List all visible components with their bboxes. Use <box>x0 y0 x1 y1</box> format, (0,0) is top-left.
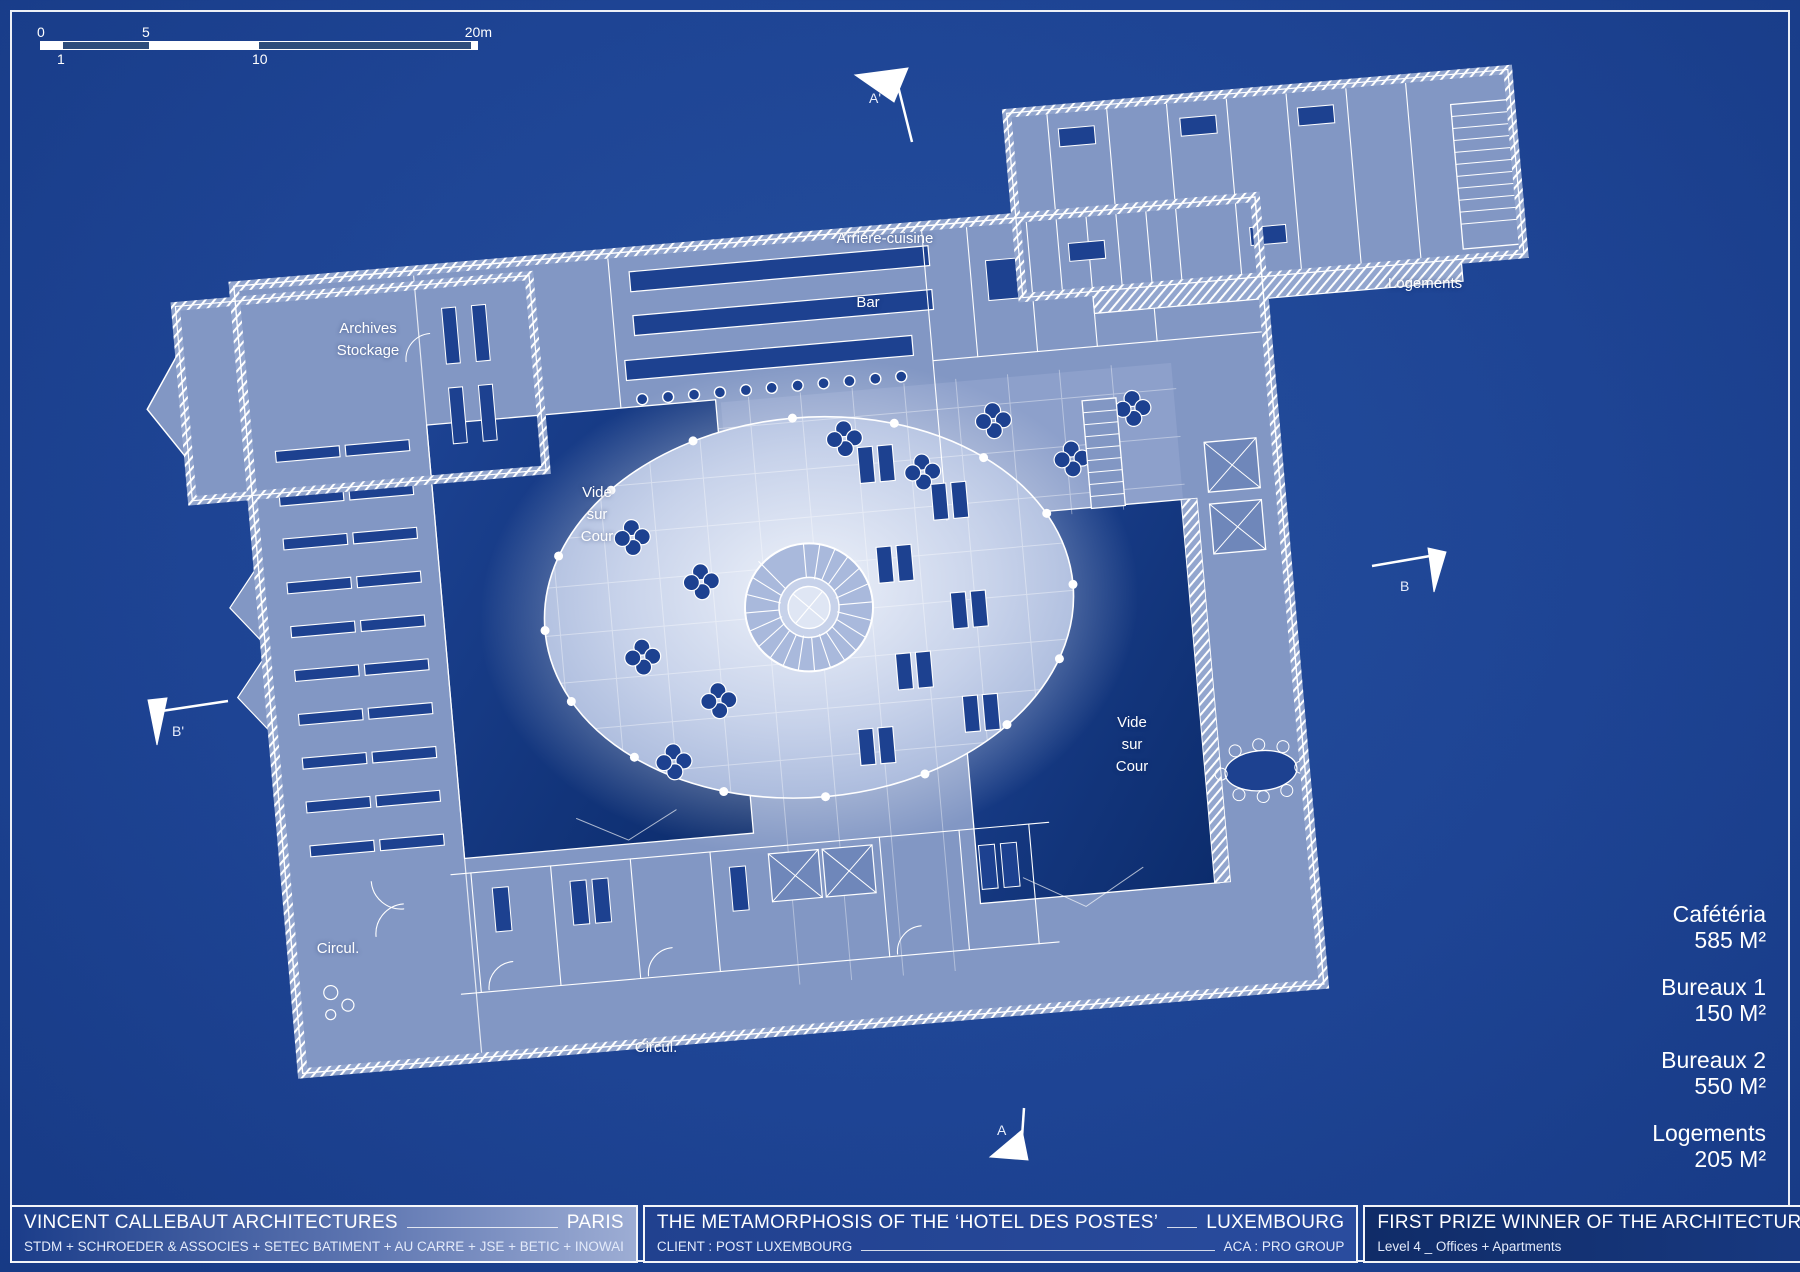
level-description: Level 4 _ Offices + Apartments <box>1377 1239 1561 1254</box>
scale-label-1: 1 <box>57 51 65 67</box>
blueprint-sheet: { "scale_bar": { "top_labels": { "zero":… <box>0 0 1800 1272</box>
label-logements: Logements <box>1360 273 1490 295</box>
legend-item-bureaux-2: Bureaux 2 550 M² <box>1652 1047 1766 1099</box>
rule-line <box>407 1213 558 1228</box>
section-label-a: A <box>997 1122 1006 1138</box>
legend-label: Bureaux 1 <box>1661 974 1766 1000</box>
label-vide-sur-cour-right: Vide sur Cour <box>1092 712 1172 777</box>
architect-name: VINCENT CALLEBAUT ARCHITECTURES <box>24 1212 398 1234</box>
scale-bar: 0 5 20m 1 10 <box>40 24 478 67</box>
client-name: CLIENT : POST LUXEMBOURG <box>657 1239 852 1254</box>
legend-label: Logements <box>1652 1120 1766 1146</box>
title-cell-award: FIRST PRIZE WINNER OF THE ARCHITECTURAL … <box>1363 1205 1800 1263</box>
label-bar: Bar <box>838 292 898 314</box>
project-city: LUXEMBOURG <box>1206 1212 1344 1234</box>
label-arriere-cuisine: Arriere-cuisine <box>800 228 970 250</box>
label-circul-left: Circul. <box>303 938 373 960</box>
label-circul-bottom: Circul. <box>621 1037 691 1059</box>
label-archives-stockage: Archives Stockage <box>308 318 428 362</box>
legend-label: Cafétéria <box>1673 901 1766 927</box>
section-label-b: B <box>1400 578 1409 594</box>
legend-area: 550 M² <box>1652 1073 1766 1099</box>
award-text: FIRST PRIZE WINNER OF THE ARCHITECTURAL … <box>1377 1212 1800 1234</box>
area-legend: Cafétéria 585 M² Bureaux 1 150 M² Bureau… <box>1652 901 1766 1193</box>
aca-name: ACA : PRO GROUP <box>1224 1239 1345 1254</box>
legend-area: 205 M² <box>1652 1146 1766 1172</box>
legend-label: Bureaux 2 <box>1661 1047 1766 1073</box>
label-vide-sur-cour-left: Vide sur Cour <box>557 482 637 547</box>
section-label-b-prime: B' <box>172 723 184 739</box>
legend-area: 150 M² <box>1652 1000 1766 1026</box>
scale-label-20m: 20m <box>465 24 492 40</box>
rule-line <box>1167 1213 1197 1228</box>
title-block: VINCENT CALLEBAUT ARCHITECTURES PARIS ST… <box>10 1205 1790 1263</box>
scale-label-0: 0 <box>37 24 45 40</box>
legend-item-bureaux-1: Bureaux 1 150 M² <box>1652 974 1766 1026</box>
legend-item-cafeteria: Cafétéria 585 M² <box>1652 901 1766 953</box>
legend-item-logements: Logements 205 M² <box>1652 1120 1766 1172</box>
architect-city: PARIS <box>567 1212 624 1234</box>
section-marker-a <box>990 1108 1028 1160</box>
section-marker-b-prime <box>148 698 228 745</box>
rule-line <box>861 1240 1214 1251</box>
section-marker-a-prime <box>855 68 912 142</box>
title-cell-project: THE METAMORPHOSIS OF THE ‘HOTEL DES POST… <box>643 1205 1358 1263</box>
scale-bar-rule <box>40 41 478 50</box>
title-cell-architect: VINCENT CALLEBAUT ARCHITECTURES PARIS ST… <box>10 1205 638 1263</box>
legend-area: 585 M² <box>1652 927 1766 953</box>
engineering-team: STDM + SCHROEDER & ASSOCIES + SETEC BATI… <box>24 1239 624 1254</box>
scale-label-10: 10 <box>252 51 268 67</box>
project-title: THE METAMORPHOSIS OF THE ‘HOTEL DES POST… <box>657 1212 1158 1234</box>
floorplan-drawing <box>0 0 1800 1272</box>
scale-label-5: 5 <box>142 24 150 40</box>
section-label-a-prime: A' <box>869 90 881 106</box>
